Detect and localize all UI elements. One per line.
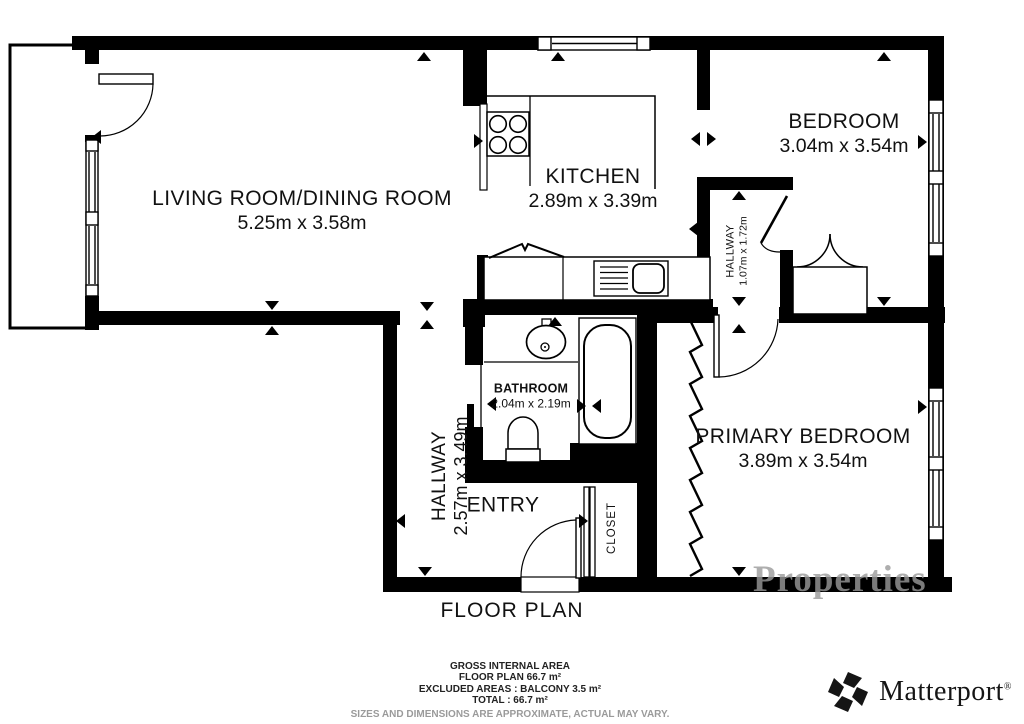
entry-door-threshold — [521, 577, 579, 592]
room-dims: 3.04m x 3.54m — [780, 135, 909, 158]
room-label-bedroom: BEDROOM 3.04m x 3.54m — [780, 110, 909, 158]
room-name: BEDROOM — [780, 110, 909, 135]
room-name: BATHROOM — [491, 382, 570, 397]
room-name: CLOSET — [606, 502, 620, 554]
gross-internal-area-heading: GROSS INTERNAL AREA — [351, 661, 670, 672]
room-name: ENTRY — [467, 494, 540, 519]
room-label-entry: ENTRY — [467, 494, 540, 519]
plan-title: FLOOR PLAN — [440, 599, 583, 623]
excluded-areas: EXCLUDED AREAS : BALCONY 3.5 m² — [351, 684, 670, 695]
room-label-hallway-upper: HALLWAY 1.07m x 1.72m — [724, 216, 749, 285]
kitchen-counter-lower — [484, 244, 710, 300]
room-dims: 2.89m x 3.39m — [529, 190, 658, 213]
matterport-wordmark: Matterport® — [879, 676, 1012, 708]
balcony-outline — [10, 45, 85, 328]
room-label-kitchen: KITCHEN 2.89m x 3.39m — [529, 165, 658, 213]
total-area: TOTAL : 66.7 m² — [351, 695, 670, 706]
room-dims: 3.89m x 3.54m — [695, 450, 910, 473]
disclaimer-text: SIZES AND DIMENSIONS ARE APPROXIMATE, AC… — [351, 709, 670, 720]
wardrobe-icon — [793, 234, 867, 314]
room-name: LIVING ROOM/DINING ROOM — [152, 187, 452, 212]
counter-flap — [489, 244, 564, 258]
floor-plan-area: FLOOR PLAN 66.7 m² — [351, 672, 670, 683]
room-dims: 5.25m x 3.58m — [152, 212, 452, 235]
bathtub-icon — [579, 318, 636, 444]
closet-slider-2 — [590, 487, 595, 577]
watermark-text: Properties — [753, 558, 927, 601]
registered-mark: ® — [1004, 682, 1012, 693]
room-name: HALLWAY — [429, 416, 451, 535]
matterport-logo-icon — [826, 670, 870, 714]
room-label-bathroom: BATHROOM 2.04m x 2.19m — [491, 382, 570, 411]
room-label-primary-bedroom: PRIMARY BEDROOM 3.89m x 3.54m — [695, 425, 910, 473]
balcony-door-panel — [99, 74, 153, 84]
toilet-icon — [506, 417, 540, 462]
room-dims: 2.04m x 2.19m — [491, 396, 570, 410]
primary-door-panel — [714, 315, 719, 377]
matterport-branding: Matterport® — [826, 670, 1012, 714]
room-name: KITCHEN — [529, 165, 658, 190]
room-dims: 1.07m x 1.72m — [737, 216, 749, 285]
stove-icon — [487, 112, 529, 156]
closet-slider-1 — [584, 487, 589, 577]
room-name: HALLWAY — [724, 216, 737, 285]
room-label-living: LIVING ROOM/DINING ROOM 5.25m x 3.58m — [152, 187, 452, 235]
room-name: PRIMARY BEDROOM — [695, 425, 910, 450]
room-label-closet: CLOSET — [606, 502, 620, 554]
hall-bedroom-door-panel — [761, 196, 787, 243]
floor-plan-page: Properties — [0, 0, 1024, 724]
area-summary: GROSS INTERNAL AREA FLOOR PLAN 66.7 m² E… — [351, 661, 670, 720]
